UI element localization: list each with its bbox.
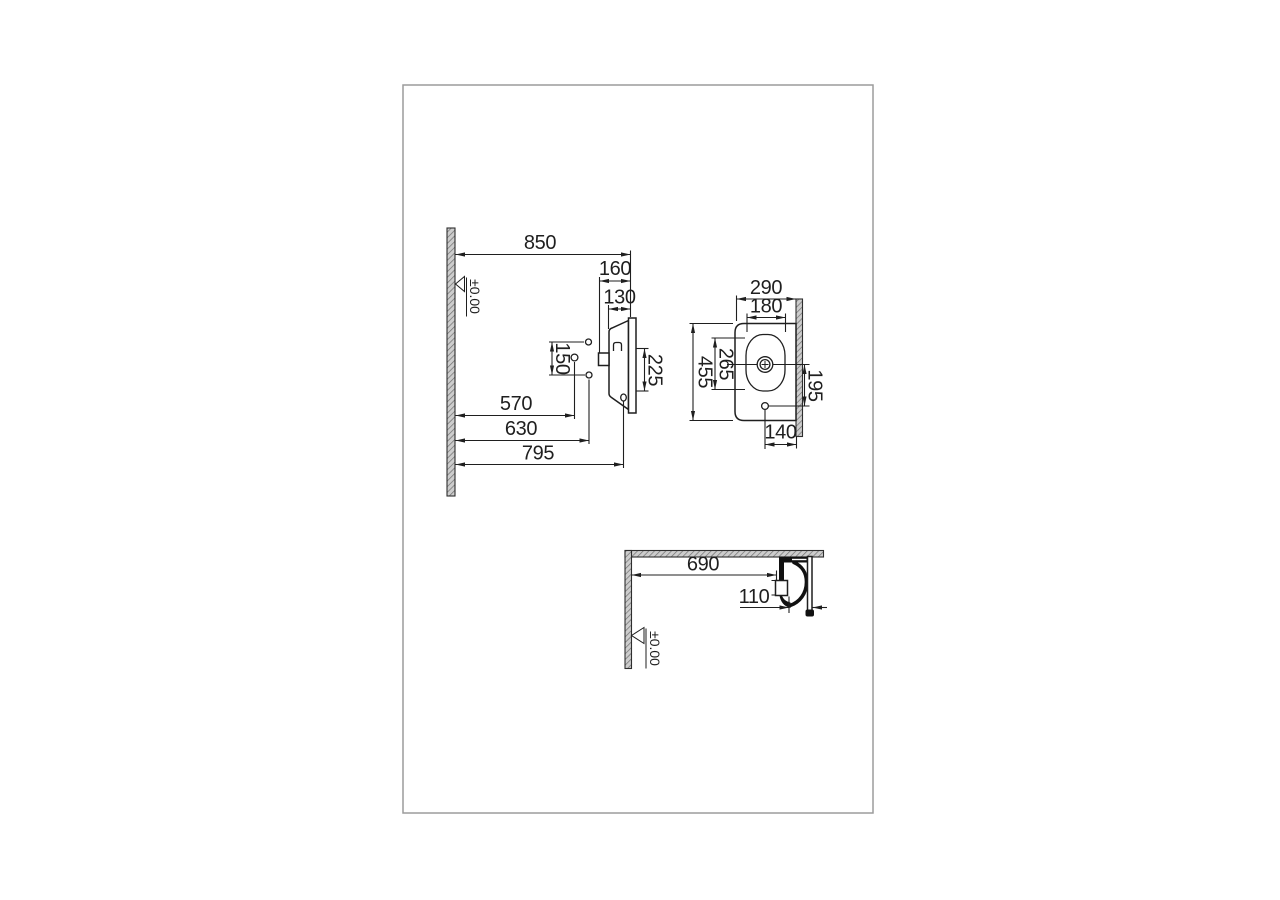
- dim-140-label: 140: [764, 422, 796, 444]
- wall-hatch-strip-section: [625, 551, 824, 558]
- dim-630-label: 630: [505, 418, 537, 440]
- dim-690-label: 690: [687, 554, 719, 576]
- basin-back-ledge: [629, 318, 637, 413]
- dim-225-label: 225: [644, 354, 666, 386]
- dim-150-label: 150: [551, 342, 573, 374]
- dim-160-label: 160: [599, 258, 631, 280]
- dim-180-label: 180: [750, 296, 782, 318]
- dim-455-label: 455: [694, 356, 716, 388]
- dim-570-label: 570: [500, 393, 532, 415]
- drawing-canvas: ±0.00: [0, 0, 1280, 900]
- back-ledge-foot: [806, 610, 815, 617]
- dim-110-label: 110: [739, 586, 770, 608]
- wall-hatch-strip-plan: [796, 299, 803, 437]
- floor-hatch-strip-section: [625, 551, 632, 669]
- back-ledge-section: [808, 557, 813, 612]
- drain-fitting-section: [776, 581, 788, 596]
- tap-hole-boss: [599, 353, 610, 366]
- datum-label-side: ±0.00: [467, 279, 483, 314]
- datum-label-section: ±0.00: [647, 631, 663, 666]
- dim-130-label: 130: [603, 287, 635, 309]
- floor-hatch-strip: [447, 228, 455, 496]
- dim-265-label: 265: [715, 348, 737, 380]
- technical-drawing: ±0.00: [0, 0, 1280, 900]
- sheet-border: [403, 85, 873, 813]
- dim-850-label: 850: [524, 232, 556, 254]
- dim-795-label: 795: [522, 443, 554, 465]
- front-edge-section: [779, 560, 784, 581]
- dim-195-label: 195: [804, 369, 826, 401]
